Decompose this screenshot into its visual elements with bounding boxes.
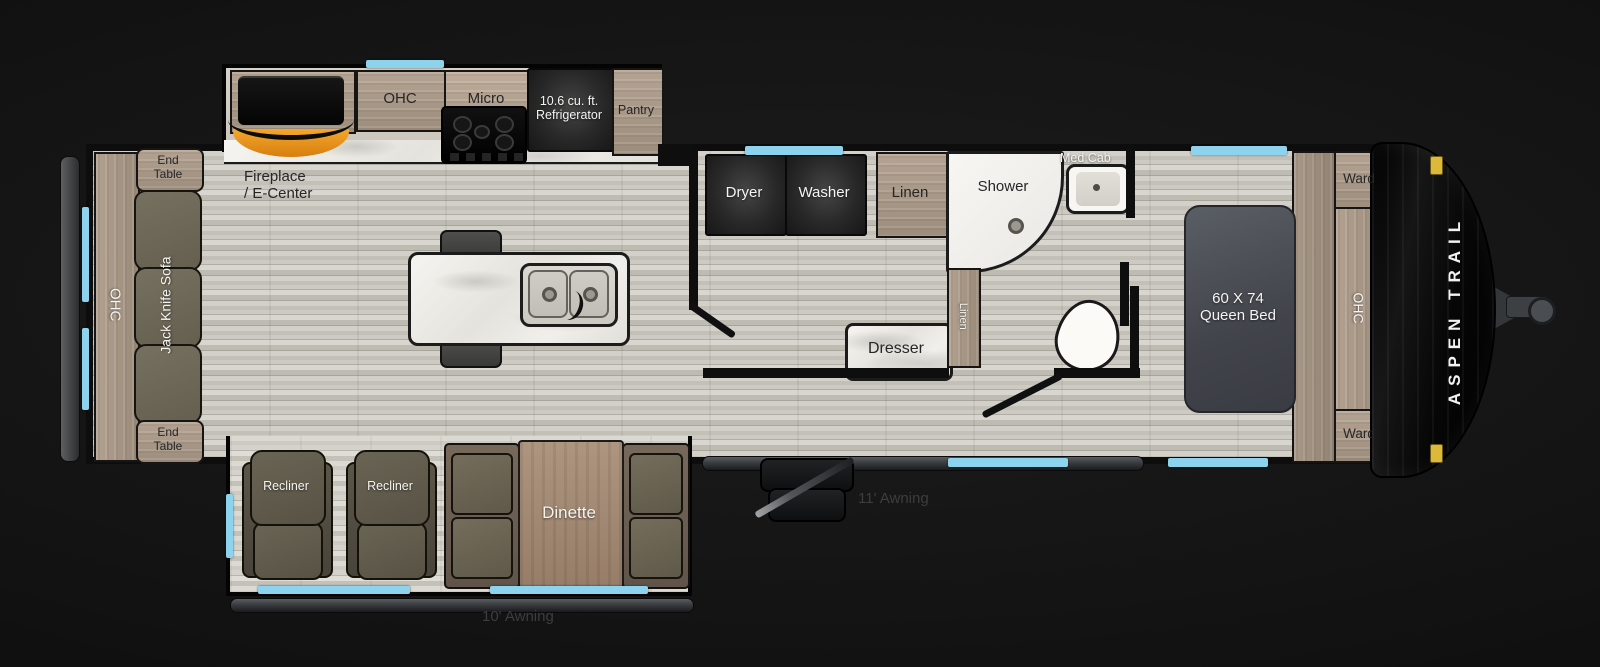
label-dryer: Dryer [705, 154, 783, 232]
label-pantry: Pantry [612, 68, 660, 152]
window-strip [1168, 458, 1268, 467]
wall-segment [689, 150, 698, 310]
wall-segment [1120, 262, 1129, 326]
label-rear-ohc: OHC [94, 152, 136, 458]
label-awning-slide: 10' Awning [482, 608, 554, 625]
shower-drain [1008, 218, 1024, 234]
label-awning-main: 11' Awning [858, 490, 929, 507]
wall-segment [1054, 368, 1140, 378]
fireplace-tv [238, 76, 344, 125]
window-strip [745, 146, 843, 155]
window-strip [1191, 146, 1287, 155]
clearance-light [1430, 444, 1443, 463]
label-linen-bedroom: Linen [947, 268, 977, 364]
label-refrigerator: 10.6 cu. ft.Refrigerator [527, 68, 611, 148]
label-dinette: Dinette [518, 440, 620, 586]
label-queen-bed: 60 X 74Queen Bed [1184, 205, 1292, 409]
label-med-cab: Med Cab [1060, 151, 1111, 165]
recliner-seat [357, 522, 427, 580]
med-cab-sink [1066, 164, 1130, 214]
window-strip [366, 60, 444, 68]
wall-segment [658, 144, 692, 166]
label-ward-top: Ward [1334, 151, 1384, 207]
clearance-light [1430, 156, 1443, 175]
front-cap: ASPEN TRAIL [1370, 142, 1496, 478]
recliner-seat [253, 522, 323, 580]
window-strip [82, 207, 89, 302]
window-strip [948, 458, 1068, 467]
label-dresser: Dresser [845, 323, 947, 375]
hitch-jack-wheel [1528, 297, 1556, 325]
brand-text: ASPEN TRAIL [1417, 144, 1494, 476]
label-ward-bottom: Ward [1334, 409, 1384, 459]
label-sofa: Jack Knife Sofa [134, 190, 198, 420]
wall-segment [1130, 286, 1139, 378]
label-recliner-left: Recliner [250, 450, 322, 522]
window-strip [82, 328, 89, 410]
floorplan-canvas: OHC Micro 10.6 cu. ft.Refrigerator Pantr… [0, 0, 1600, 667]
label-end-table-top: EndTable [136, 148, 200, 188]
label-shower: Shower [958, 178, 1048, 195]
label-recliner-right: Recliner [354, 450, 426, 522]
label-bedroom-ohc: OHC [1334, 207, 1384, 409]
window-strip [258, 586, 410, 594]
wall-segment [1126, 148, 1135, 218]
label-washer: Washer [785, 154, 863, 232]
label-fireplace: Fireplace / E-Center [244, 168, 312, 203]
island-sink [520, 263, 618, 327]
window-strip [226, 494, 233, 558]
label-linen-laundry: Linen [876, 152, 944, 234]
awning-rail-slide [230, 598, 694, 613]
headboard [1292, 151, 1338, 463]
dinette-bench [444, 443, 520, 589]
label-micro: Micro [444, 70, 528, 128]
dinette-bench [622, 443, 690, 589]
rear-bumper [60, 156, 80, 462]
label-kitchen-ohc: OHC [356, 70, 444, 128]
label-end-table-bottom: EndTable [136, 420, 200, 460]
window-strip [490, 586, 648, 594]
